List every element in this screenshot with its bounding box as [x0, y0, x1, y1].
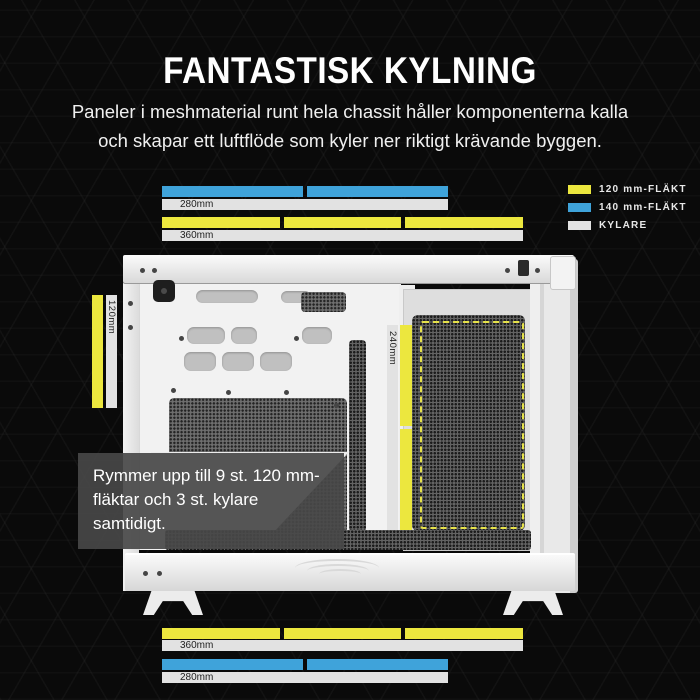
bottom-360mm-label: 360mm	[180, 640, 213, 651]
case-bottom-rail	[125, 553, 575, 591]
top-360mm-label: 360mm	[180, 230, 213, 241]
fan-segment	[400, 325, 412, 426]
top-280mm-label: 280mm	[180, 199, 213, 210]
top-360mm-radiator-bar: 360mm	[162, 230, 523, 241]
page-subtitle: Paneler i meshmaterial runt hela chassit…	[0, 98, 700, 155]
mesh-vent-column	[349, 340, 366, 532]
screw-icon	[284, 390, 289, 395]
internal-240mm-fan-bar	[400, 325, 412, 530]
side-120mm-label-bar: 120mm	[106, 295, 117, 408]
tray-cutout	[187, 327, 225, 344]
callout-text: Rymmer upp till 9 st. 120 mm-fläktar och…	[93, 466, 320, 533]
tray-cutout	[231, 327, 257, 344]
fan-segment	[400, 429, 412, 530]
cable	[319, 569, 361, 579]
side-120mm-fan-bar	[92, 295, 103, 408]
fan-segment	[162, 659, 303, 670]
case-top-rail	[123, 255, 574, 283]
legend-swatch-140mm-fan-icon	[568, 203, 591, 212]
screw-icon	[152, 268, 157, 273]
internal-240mm-label-bar: 240mm	[387, 325, 398, 530]
bottom-280mm-label: 280mm	[180, 672, 213, 683]
subtitle-line-1: Paneler i meshmaterial runt hela chassit…	[0, 98, 700, 127]
corner-bracket	[550, 256, 576, 290]
legend-item-kylare: KYLARE	[568, 220, 687, 231]
top-280mm-radiator-bar: 280mm	[162, 199, 448, 210]
legend-item-140mm-fan: 140 mm-FLÄKT	[568, 202, 687, 213]
legend-swatch-kylare-icon	[568, 221, 591, 230]
tray-cutout	[196, 290, 258, 303]
legend-swatch-120mm-fan-icon	[568, 185, 591, 194]
mesh-vent	[301, 292, 346, 312]
tray-cutout	[260, 352, 292, 371]
screw-icon	[294, 336, 299, 341]
tray-cutout	[222, 352, 254, 371]
fan-segment	[405, 217, 523, 228]
screw-icon	[143, 571, 148, 576]
infographic-page: { "title": "FANTASTISK KYLNING", "subtit…	[0, 0, 700, 700]
top-140mm-fan-bar	[162, 186, 448, 197]
panel-latch	[518, 260, 529, 276]
callout-box: Rymmer upp till 9 st. 120 mm-fläktar och…	[78, 453, 344, 549]
screw-icon	[171, 388, 176, 393]
side-120mm-measurement: 120mm	[92, 295, 117, 408]
fan-segment	[162, 628, 280, 639]
screw-icon	[226, 390, 231, 395]
fan-segment	[162, 217, 280, 228]
bottom-120mm-fan-bar	[162, 628, 523, 639]
bottom-140mm-fan-bar	[162, 659, 448, 670]
screw-icon	[535, 268, 540, 273]
tray-cutout	[184, 352, 216, 371]
screw-icon	[179, 336, 184, 341]
legend-label-120mm-fan: 120 mm-FLÄKT	[599, 184, 687, 195]
screw-icon	[334, 403, 339, 408]
legend-label-kylare: KYLARE	[599, 220, 647, 231]
subtitle-line-2: och skapar ett luftflöde som kyler ner r…	[0, 127, 700, 156]
fan-segment	[284, 628, 402, 639]
bottom-360mm-radiator-bar: 360mm	[162, 640, 523, 651]
top-120mm-fan-bar	[162, 217, 523, 228]
bottom-280mm-radiator-bar: 280mm	[162, 672, 448, 683]
fan-segment	[284, 217, 402, 228]
screw-icon	[505, 268, 510, 273]
fan-segment	[307, 659, 448, 670]
fan-segment	[307, 186, 448, 197]
screw-icon	[128, 325, 133, 330]
fan-segment	[405, 628, 523, 639]
rear-fan-hub	[153, 280, 175, 302]
page-title: FANTASTISK KYLNING	[35, 50, 665, 92]
case-foot	[143, 591, 203, 615]
case-foot	[503, 591, 563, 615]
legend: 120 mm-FLÄKT 140 mm-FLÄKT KYLARE	[568, 184, 687, 231]
screw-icon	[140, 268, 145, 273]
legend-label-140mm-fan: 140 mm-FLÄKT	[599, 202, 687, 213]
tray-cutout	[302, 327, 332, 344]
legend-item-120mm-fan: 120 mm-FLÄKT	[568, 184, 687, 195]
pc-case-illustration: 240mm	[123, 253, 578, 616]
screw-icon	[128, 301, 133, 306]
case-side-panel	[530, 259, 578, 593]
screw-icon	[157, 571, 162, 576]
fan-segment	[162, 186, 303, 197]
fan-mount-zone-outline	[420, 321, 524, 529]
